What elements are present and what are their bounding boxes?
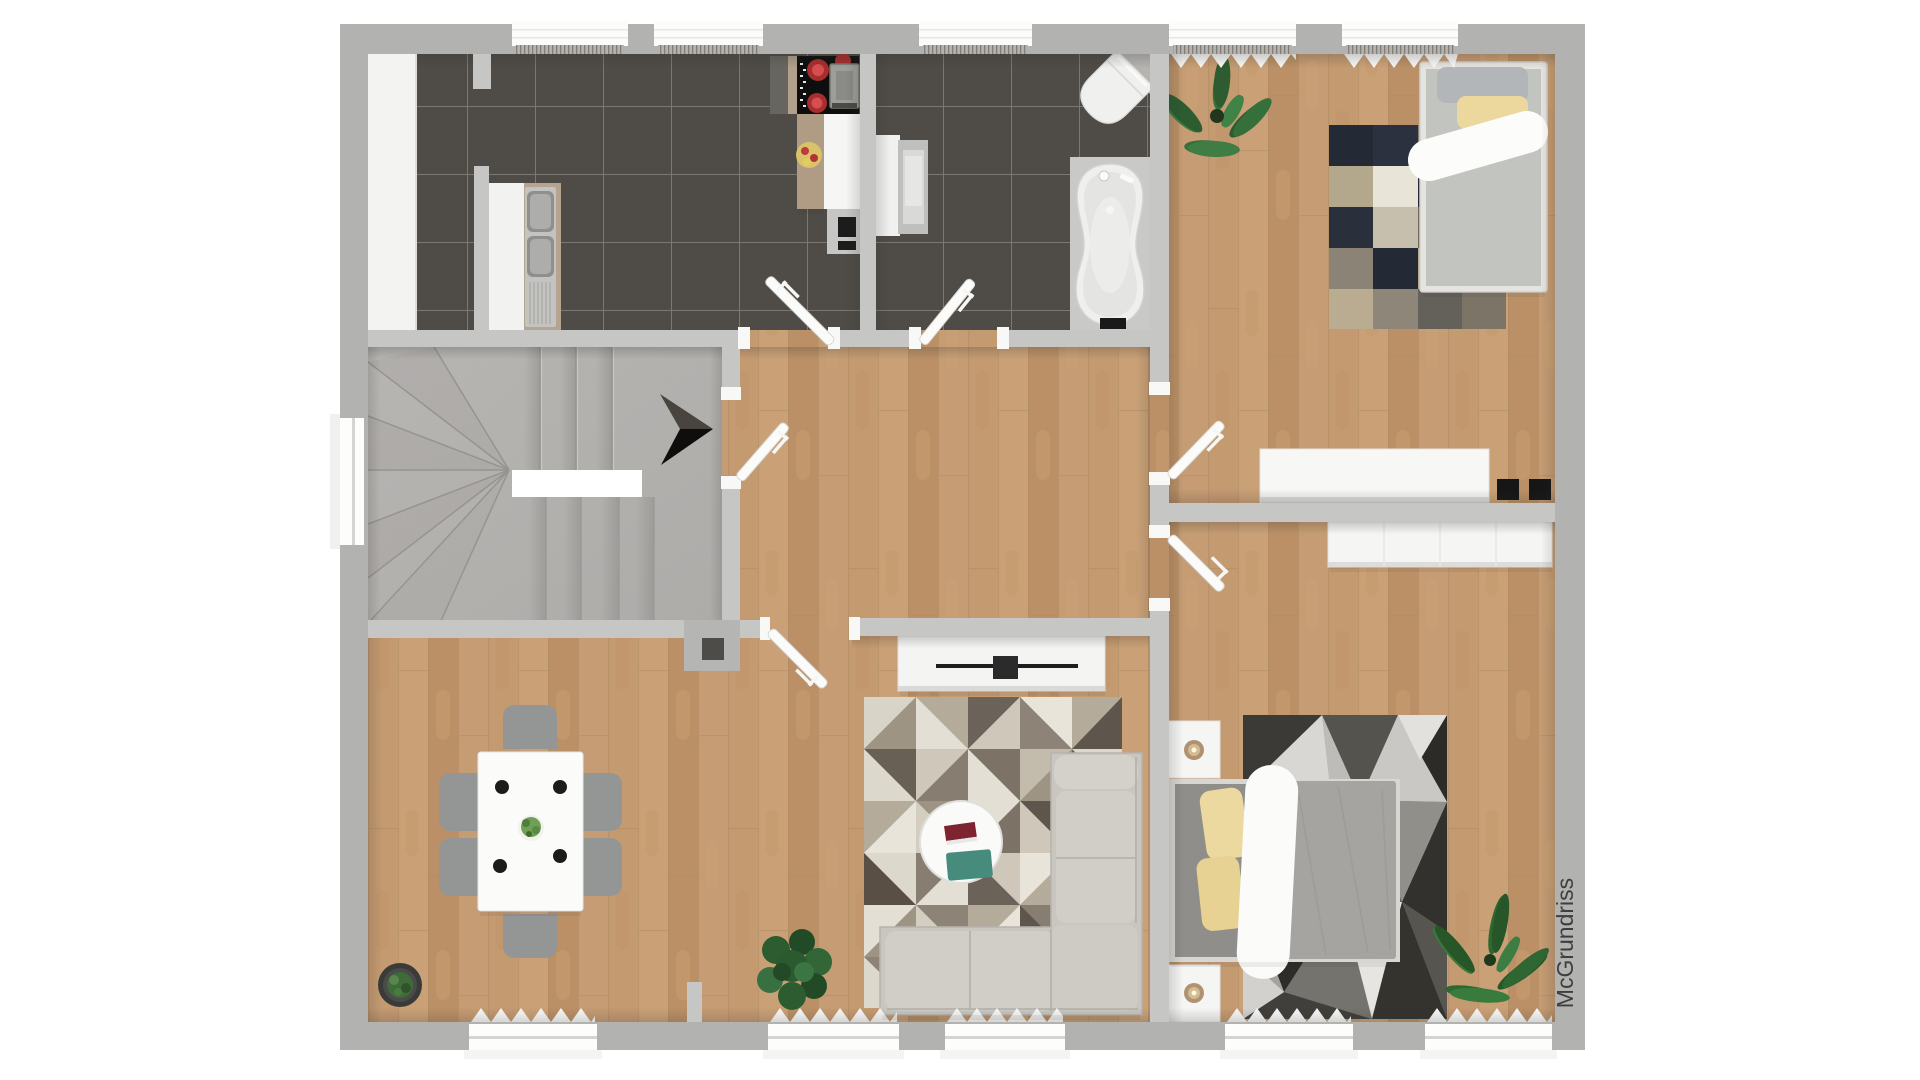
svg-text:McGrundriss: McGrundriss xyxy=(1552,878,1578,1008)
